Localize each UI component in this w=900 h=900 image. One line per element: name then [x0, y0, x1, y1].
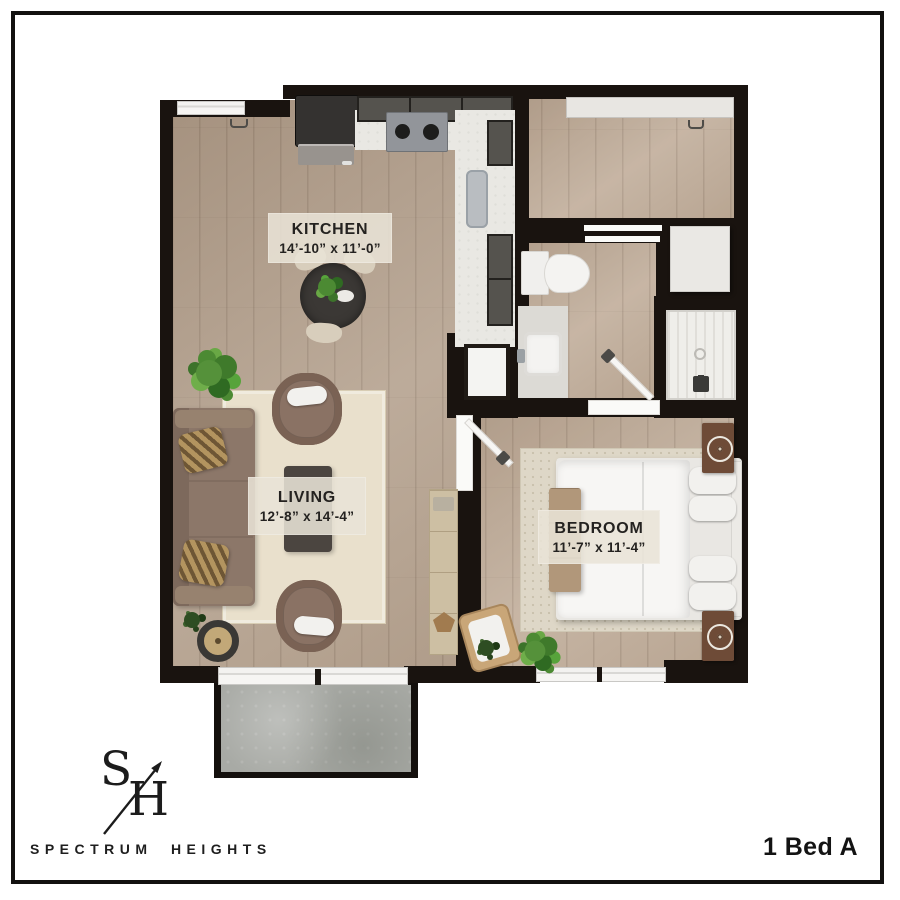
kitchen-label: KITCHEN 14’-10” x 11’-0”	[268, 213, 392, 263]
wall-bottom-left	[160, 666, 220, 683]
entry-hook	[688, 120, 704, 129]
sofa-arm-bottom	[175, 586, 253, 604]
refrigerator-top	[295, 95, 359, 147]
dining-dish	[336, 290, 354, 302]
dining-plant	[318, 278, 336, 296]
kitchen-cabinet-right-2	[487, 234, 513, 326]
brand-monogram: S H	[88, 746, 192, 844]
wall-bottom-mid	[404, 666, 464, 683]
linen-cabinet	[670, 226, 730, 292]
living-window-crank	[230, 119, 248, 128]
dining-table	[300, 263, 366, 329]
sofa-pillow-2	[178, 538, 231, 587]
arrow-slash-icon	[88, 746, 192, 844]
shower-fixture	[693, 376, 709, 392]
bedroom-chair-plant	[478, 640, 494, 656]
pocket-door-panel-1	[584, 225, 662, 231]
stove-burner-left	[395, 124, 410, 139]
balcony-concrete	[221, 685, 411, 772]
pocket-door-panel-2	[585, 236, 660, 242]
wall-left	[160, 100, 173, 683]
opening-bedroom-bath	[588, 400, 660, 415]
brand-name: SPECTRUM HEIGHTS	[30, 841, 270, 857]
living-name: LIVING	[278, 489, 336, 507]
kitchen-name: KITCHEN	[292, 221, 369, 239]
shower-drain	[694, 348, 706, 360]
nightstand-bottom-lamp	[707, 624, 733, 650]
armchair-bottom-pillow	[293, 615, 334, 636]
kitchen-cabinet-right-1	[487, 120, 513, 166]
bed-pillow-2	[689, 496, 736, 521]
wall-mirror	[464, 344, 510, 400]
sofa-arm-top	[175, 410, 253, 428]
entry-closet	[566, 97, 734, 118]
unit-name: 1 Bed A	[660, 833, 858, 862]
bedroom-plant	[525, 641, 546, 662]
bath-sink	[524, 332, 562, 376]
nightstand-top-lamp	[707, 436, 733, 462]
balcony-sliding-door	[218, 667, 408, 685]
window-mullion	[597, 667, 602, 682]
living-label: LIVING 12’-8” x 14’-4”	[248, 477, 366, 535]
wall-bottom-bedroom-left	[458, 666, 540, 683]
living-plant-small	[184, 612, 200, 628]
stove-burner-right	[423, 124, 439, 140]
bedroom-label: BEDROOM 11’-7” x 11’-4”	[538, 510, 660, 564]
bedroom-name: BEDROOM	[554, 520, 643, 538]
refrigerator-handle	[342, 161, 352, 165]
living-dimensions: 12’-8” x 14’-4”	[260, 509, 355, 524]
bed-pillow-3	[689, 556, 736, 581]
bedroom-dimensions: 11’-7” x 11’-4”	[552, 540, 645, 555]
console-item	[433, 497, 454, 511]
kitchen-sink	[466, 170, 488, 228]
balcony-door-handle	[315, 669, 321, 685]
floorplan-canvas: KITCHEN 14’-10” x 11’-0” LIVING 12’-8” x…	[0, 0, 900, 900]
bed-pillow-4	[689, 583, 736, 610]
armchair-top	[272, 373, 342, 445]
toilet-bowl	[544, 254, 590, 293]
living-plant-large	[196, 360, 222, 386]
window-living-top	[177, 101, 245, 115]
kitchen-dimensions: 14’-10” x 11’-0”	[279, 241, 381, 256]
bath-faucet	[517, 349, 525, 363]
side-table-center	[215, 638, 221, 644]
